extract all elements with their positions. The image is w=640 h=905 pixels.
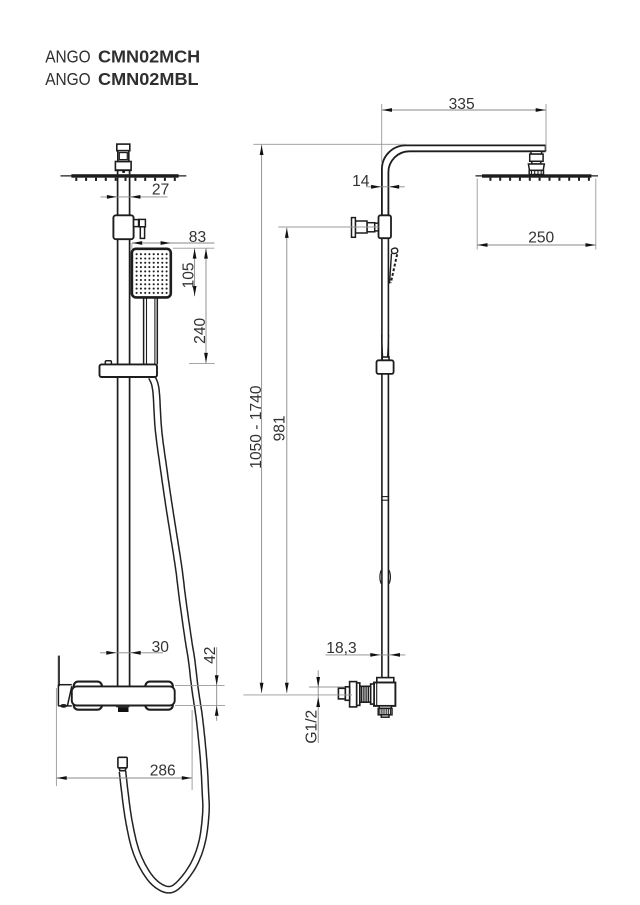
svg-text:18,3: 18,3 — [326, 640, 356, 657]
svg-text:ANGO: ANGO — [45, 69, 90, 89]
svg-text:105: 105 — [181, 262, 198, 288]
svg-text:CMN02MBL: CMN02MBL — [98, 69, 199, 89]
svg-text:27: 27 — [152, 182, 169, 199]
svg-text:286: 286 — [150, 763, 176, 780]
svg-text:CMN02MCH: CMN02MCH — [98, 47, 200, 67]
svg-text:30: 30 — [152, 639, 170, 656]
svg-text:981: 981 — [272, 415, 289, 441]
svg-text:1050 - 1740: 1050 - 1740 — [248, 385, 265, 469]
svg-text:G1/2: G1/2 — [303, 710, 320, 744]
svg-text:240: 240 — [192, 317, 209, 343]
svg-text:250: 250 — [528, 230, 554, 247]
svg-text:42: 42 — [202, 647, 219, 664]
svg-text:335: 335 — [449, 96, 475, 113]
svg-text:ANGO: ANGO — [45, 47, 90, 67]
svg-text:83: 83 — [189, 229, 206, 246]
svg-text:14: 14 — [352, 173, 370, 190]
